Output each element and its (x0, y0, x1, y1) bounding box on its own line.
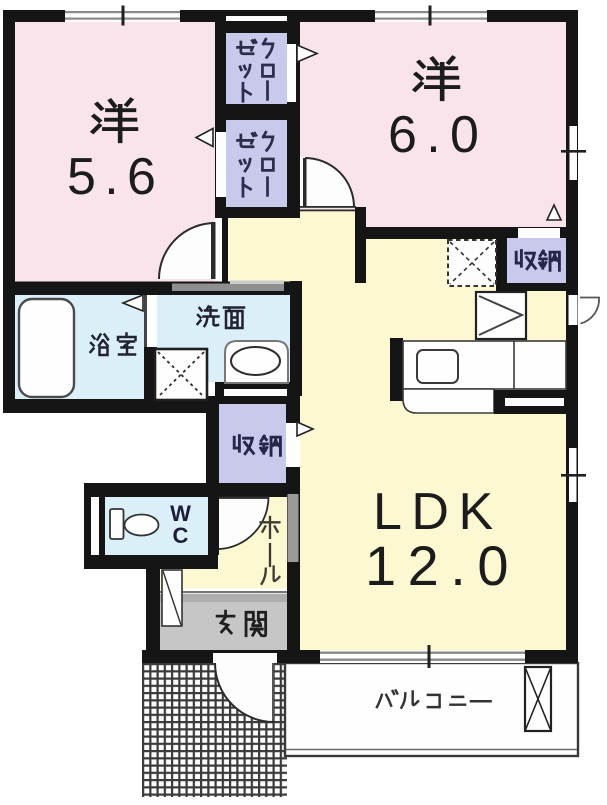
svg-text:6.0: 6.0 (388, 106, 488, 164)
svg-text:LDK: LDK (373, 483, 503, 541)
svg-text:5.6: 5.6 (67, 148, 164, 206)
svg-text:12.0: 12.0 (365, 534, 520, 597)
svg-text:C: C (173, 523, 189, 548)
